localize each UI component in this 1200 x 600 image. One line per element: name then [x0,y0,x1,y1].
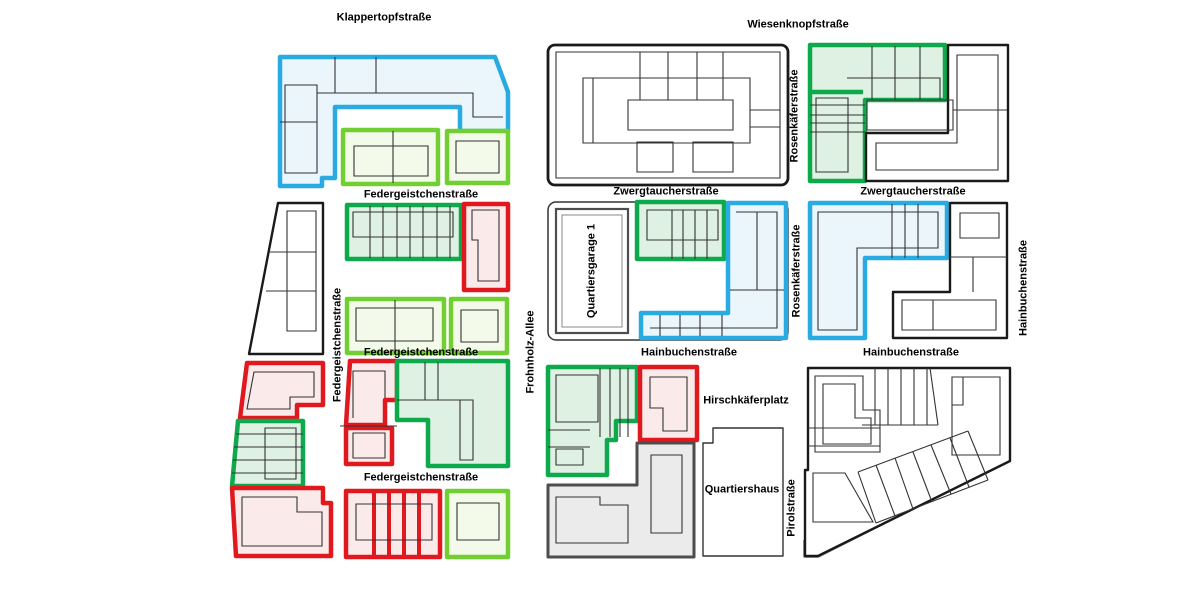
block-rosenkaefer-east [810,45,1008,181]
block-zwergtaucher-east [810,203,1007,338]
street-label-rosenkaefer-south: Rosenkäferstraße [792,225,803,318]
block-federgeistchen-south [340,361,508,466]
street-label-hirschkaeferplatz: Hirschkäferplatz [703,396,789,407]
building-lime-south-2 [451,299,507,353]
block-southwest [232,363,331,556]
building-red-corner [464,204,508,290]
street-label-pirolstrasse: Pirolstraße [787,479,798,536]
street-label-hainbuchen-vertical: Hainbuchenstraße [1019,240,1030,336]
block-quartiersgarage [548,202,788,340]
building-green-rowhouses [347,205,461,259]
building-red-square [640,367,697,440]
block-pirol [805,368,1010,556]
street-label-frohnholz-allee: Frohnholz-Allee [526,310,537,393]
block-klappertopf [280,57,508,186]
building-green-terrace [232,421,303,486]
street-label-hainbuchen-center: Hainbuchenstraße [641,348,737,359]
block-outline-pirol [805,368,1010,556]
street-label-wiesenknopfstrasse: Wiesenknopfstraße [747,20,848,31]
street-label-federgeistchen-south: Federgeistchenstraße [364,473,478,484]
street-label-klappertopfstrasse: Klappertopfstraße [337,13,432,24]
building-green-corner [548,367,637,475]
building-red-strip-row [346,491,440,557]
street-label-rosenkaefer-north: Rosenkäferstraße [790,70,801,163]
street-label-federgeistchen-mid: Federgeistchenstraße [364,348,478,359]
street-label-federgeistchen-vertical: Federgeistchenstraße [333,288,344,402]
block-red-strips [346,491,508,557]
building-label-quartiershaus: Quartiershaus [705,485,780,496]
block-wiesenknopf [548,45,788,185]
street-label-federgeistchen-north: Federgeistchenstraße [364,190,478,201]
street-label-zwergtaucher-center: Zwergtaucherstraße [613,187,718,198]
block-trapezoid-west [249,203,323,354]
block-federgeistchen-mid [347,204,508,353]
building-green-l [397,361,508,466]
building-red-north [240,363,323,418]
street-label-zwergtaucher-east: Zwergtaucherstraße [860,187,965,198]
building-label-quartiersgarage: Quartiersgarage 1 [587,224,598,318]
site-plan: Klappertopfstraße Wiesenknopfstraße Fede… [0,0,1200,600]
street-label-hainbuchen-east: Hainbuchenstraße [863,348,959,359]
